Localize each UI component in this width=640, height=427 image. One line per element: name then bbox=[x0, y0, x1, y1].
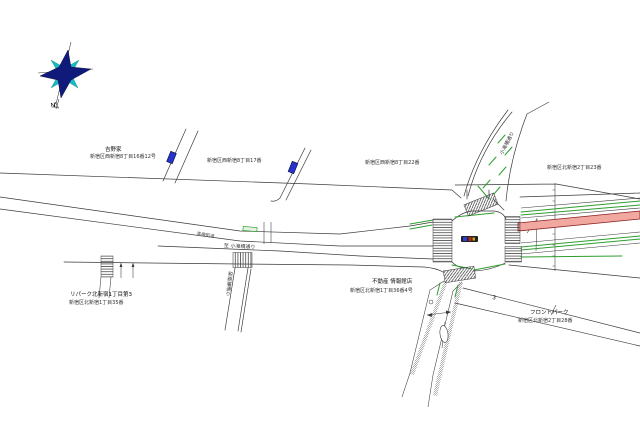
verge-marker-icon bbox=[243, 226, 257, 231]
direction-arrows bbox=[120, 263, 135, 279]
label-block-number: 3 bbox=[492, 295, 497, 302]
building-marker-icon bbox=[288, 161, 298, 173]
label-frontpark-name: フロントパーク bbox=[530, 310, 569, 317]
dimension-arrow bbox=[427, 310, 451, 317]
label-block-nishishinjuku-22: 新宿区西新宿8丁目22番 bbox=[365, 160, 420, 166]
wall-hatch bbox=[410, 281, 463, 396]
label-block-kitashinjuku-23: 新宿区北新宿2丁目23番 bbox=[547, 165, 602, 171]
label-fudosan-name: 不動産 情報館店 bbox=[372, 279, 412, 286]
compass-rose-icon bbox=[38, 42, 93, 109]
map-canvas: 吉野家 新宿区西新宿8丁目16番12号 新宿区西新宿8丁目17番 新宿区西新宿8… bbox=[0, 0, 640, 427]
road-lines bbox=[0, 102, 640, 407]
label-repark-name: リパーク北新宿1丁目第3 bbox=[70, 292, 132, 299]
vehicle-marker-icon bbox=[461, 236, 478, 242]
label-fudosan-address: 新宿区北新宿1丁目36番4号 bbox=[350, 288, 413, 294]
crosswalk-hatches bbox=[101, 193, 522, 283]
label-frontpark-address: 新宿区北新宿2丁目28番 bbox=[518, 318, 573, 324]
label-yoshinoya-address: 新宿区西新宿8丁目16番12号 bbox=[90, 154, 156, 160]
label-repark-address: 新宿区北新宿1丁目35番 bbox=[69, 300, 124, 306]
label-block-nishishinjuku-17: 新宿区西新宿8丁目17番 bbox=[207, 158, 262, 164]
building-marker-icon bbox=[167, 151, 177, 163]
map-linework bbox=[0, 0, 640, 427]
label-yoshinoya-name: 吉野家 bbox=[105, 147, 122, 154]
